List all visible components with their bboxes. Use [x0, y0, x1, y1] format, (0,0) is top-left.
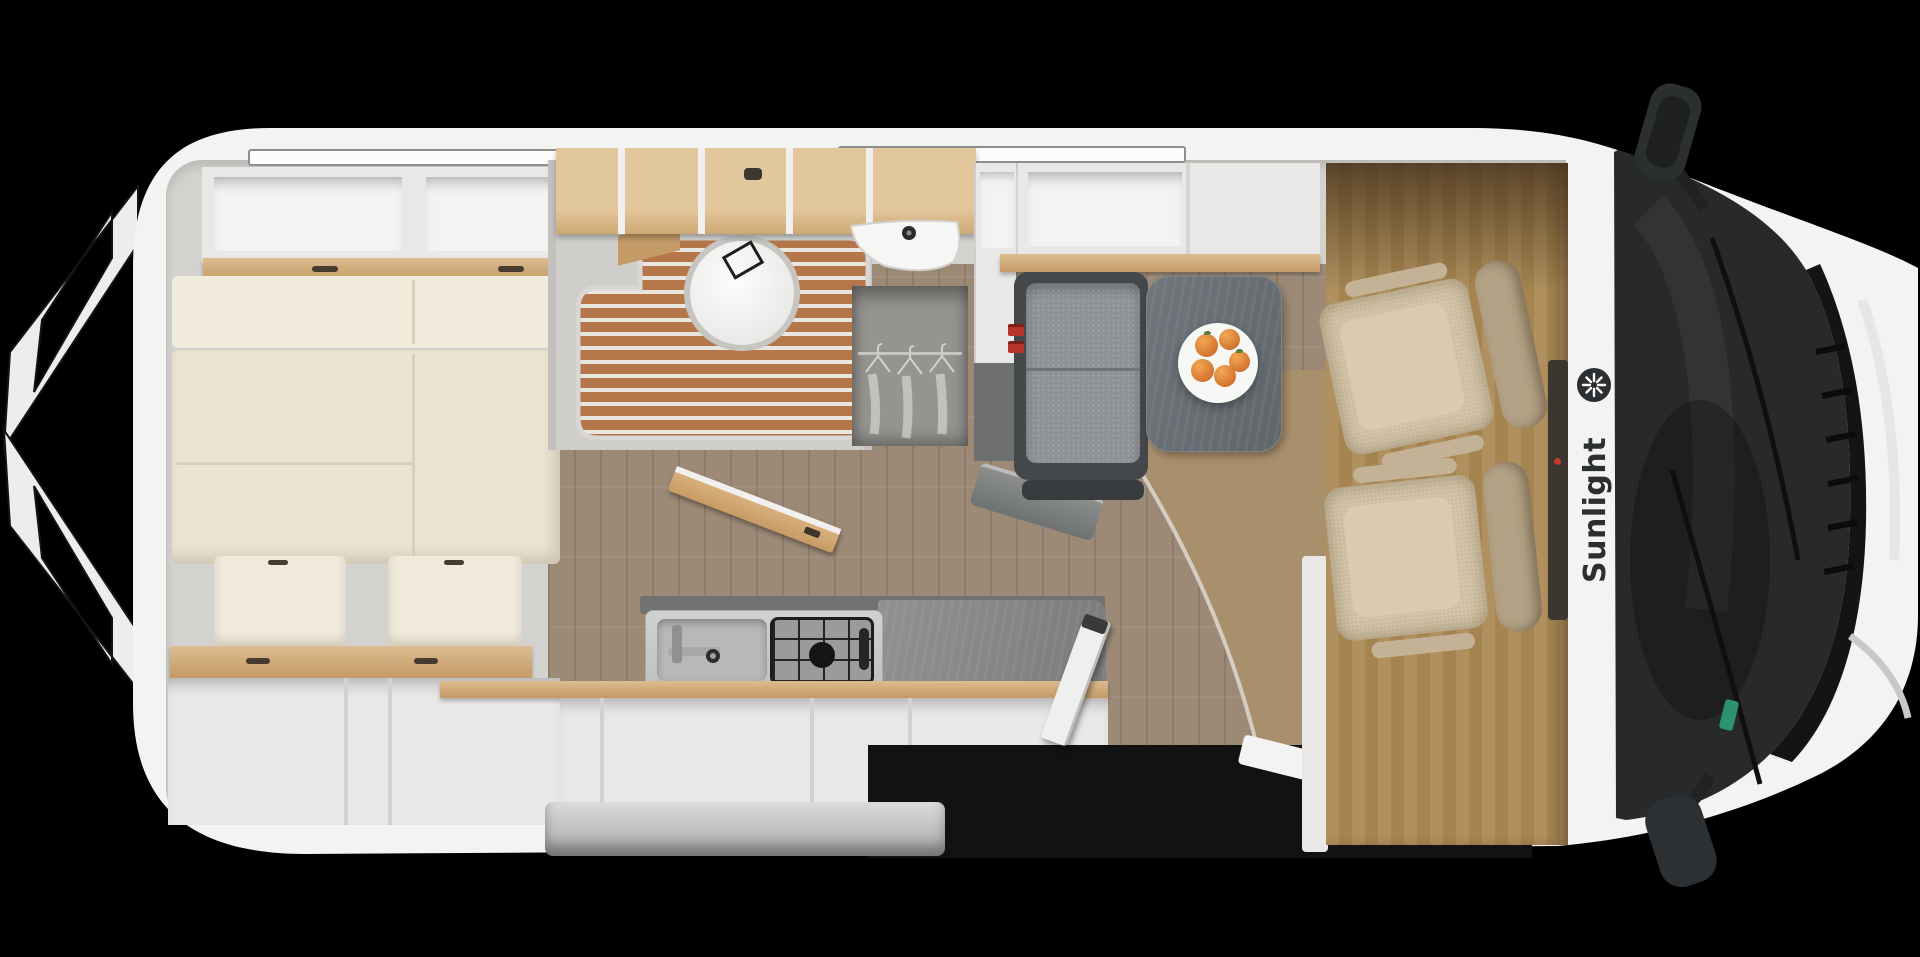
camper-floorplan-image: Sunlight	[0, 0, 1920, 957]
front-end	[0, 0, 1920, 957]
sun-star-icon	[1577, 368, 1611, 402]
hood-crease	[1862, 300, 1895, 560]
chrome-trim	[1850, 636, 1908, 718]
brand-logo-text: Sunlight	[1578, 413, 1612, 583]
